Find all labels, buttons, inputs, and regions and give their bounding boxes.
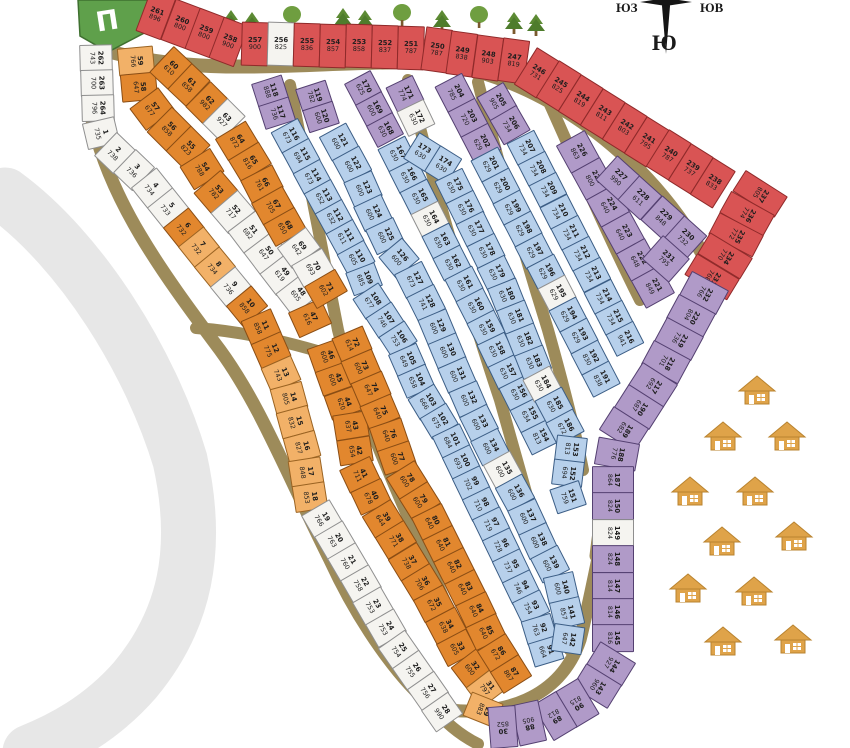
plot-area: 787: [430, 50, 443, 59]
plot-area: 654: [347, 445, 356, 458]
plot-area: 848: [298, 466, 307, 479]
plot-area: 647: [131, 81, 139, 94]
compass-southeast-label: ЮВ: [700, 0, 723, 16]
plot-187: 187864: [592, 466, 634, 494]
plot-149: 149824: [592, 519, 634, 547]
plot-148: 148824: [592, 545, 634, 573]
plot-254: 254857: [319, 23, 348, 68]
compass-south-label: Ю: [652, 30, 677, 56]
land-plot-map: 2618962608002598002589002579002568252558…: [0, 0, 850, 748]
plot-area: 858: [353, 46, 365, 53]
plot-142: 142647: [551, 623, 586, 655]
plot-area: 837: [379, 47, 391, 54]
plot-area: 800: [197, 31, 211, 42]
plot-area: 814: [606, 606, 613, 618]
plot-area: 766: [128, 55, 136, 68]
plot-area: 836: [301, 45, 313, 52]
compass-southwest-label: ЮЗ: [616, 0, 638, 16]
plot-area: 857: [327, 46, 339, 53]
plot-147: 147814: [592, 572, 634, 600]
plot-number: 262: [96, 50, 104, 64]
plot-area: 852: [497, 719, 510, 727]
plot-number: 148: [613, 552, 620, 566]
plot-150: 150824: [592, 492, 634, 520]
plot-255: 255836: [293, 23, 322, 68]
plot-area: 824: [606, 527, 613, 539]
plot-252: 252837: [371, 25, 400, 70]
plot-area: 813: [563, 442, 571, 455]
plot-area: 694: [560, 466, 568, 479]
plot-area: 816: [606, 632, 613, 644]
plot-number: 187: [613, 473, 620, 487]
plot-area: 900: [221, 40, 235, 51]
plot-area: 782: [305, 90, 315, 104]
plot-area: 838: [455, 53, 468, 62]
plot-area: 824: [606, 553, 613, 565]
plot-146: 146814: [592, 598, 634, 626]
plot-area: 787: [405, 48, 417, 55]
plot-number: 263: [97, 76, 105, 90]
plot-area: 664: [537, 645, 547, 659]
plot-area: 819: [507, 60, 520, 69]
plot-area: 735: [93, 127, 103, 141]
entrance-gate-icon: П: [94, 4, 121, 38]
plot-area: 700: [90, 77, 97, 89]
plot-number: 150: [613, 499, 620, 513]
plot-263: 263700: [80, 69, 114, 97]
plot-area: 796: [90, 102, 97, 114]
plot-number: 145: [613, 631, 620, 645]
plot-area: 888: [261, 85, 271, 99]
plot-area: 814: [606, 579, 613, 591]
plot-area: 900: [249, 44, 261, 51]
plot-area: 825: [275, 44, 287, 51]
plot-number: 146: [613, 605, 620, 619]
plot-area: 853: [302, 491, 311, 504]
plot-area: 864: [606, 474, 613, 486]
plot-262: 262743: [79, 44, 113, 72]
plot-area: 824: [606, 500, 613, 512]
plot-30: 30852: [488, 705, 519, 748]
plot-number: 147: [613, 578, 620, 592]
plot-257: 257900: [241, 21, 270, 66]
plot-256: 256825: [267, 22, 296, 67]
plot-area: 776: [609, 447, 618, 460]
plot-area: 905: [522, 715, 535, 725]
plot-number: 149: [613, 526, 620, 540]
plot-area: 637: [343, 420, 352, 433]
plot-area: 647: [560, 632, 569, 645]
plots-layer: 2618962608002598002589002579002568252558…: [0, 0, 850, 748]
plot-253: 253858: [345, 24, 374, 69]
plot-area: 903: [481, 57, 494, 66]
plot-area: 805: [280, 392, 290, 406]
plot-area: 800: [172, 22, 186, 33]
plot-area: 600: [312, 112, 322, 126]
plot-area: 743: [89, 52, 96, 64]
plot-area: 736: [268, 107, 278, 121]
